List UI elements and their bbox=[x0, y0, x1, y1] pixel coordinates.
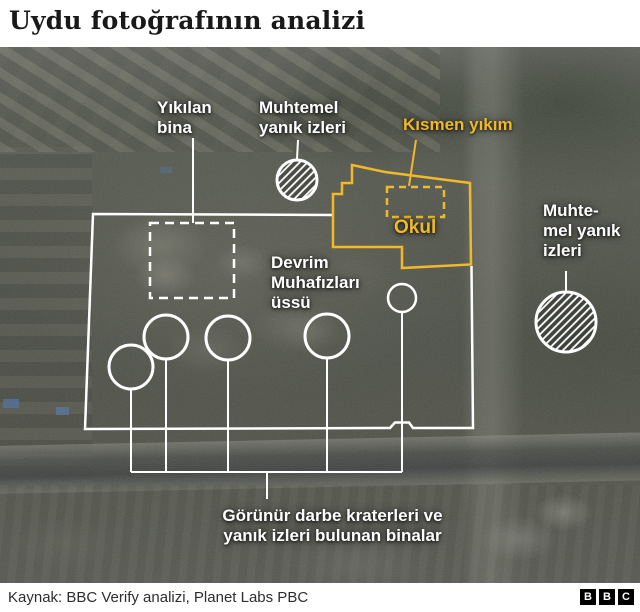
label-destroyed-building: Yıkılan bina bbox=[157, 98, 212, 138]
label-guard-base: Devrim Muhafızları üssü bbox=[271, 253, 360, 313]
infographic: Uydu fotoğrafının analizi bbox=[0, 0, 640, 612]
burn-marks-circle-top bbox=[277, 160, 317, 200]
label-school: Okul bbox=[394, 218, 436, 238]
label-partial-destruction: Kısmen yıkım bbox=[403, 115, 513, 135]
source-text: Kaynak: BBC Verify analizi, Planet Labs … bbox=[8, 583, 308, 612]
label-burn-marks-top: Muhtemel yanık izleri bbox=[259, 98, 346, 138]
bbc-logo-block: B bbox=[599, 589, 615, 605]
label-impact-craters: Görünür darbe kraterleri ve yanık izleri… bbox=[205, 506, 460, 546]
label-burn-marks-right: Muhte- mel yanık izleri bbox=[543, 201, 621, 261]
bbc-logo: B B C bbox=[580, 589, 634, 605]
burn-marks-circle-right bbox=[536, 292, 596, 352]
footer: Kaynak: BBC Verify analizi, Planet Labs … bbox=[0, 583, 640, 612]
bbc-logo-block: C bbox=[618, 589, 634, 605]
header: Uydu fotoğrafının analizi bbox=[0, 0, 640, 47]
satellite-photo: Yıkılan bina Muhtemel yanık izleri Kısme… bbox=[0, 47, 640, 583]
connector-burn-marks-top bbox=[297, 140, 298, 159]
bbc-logo-block: B bbox=[580, 589, 596, 605]
page-title: Uydu fotoğrafının analizi bbox=[9, 6, 365, 35]
